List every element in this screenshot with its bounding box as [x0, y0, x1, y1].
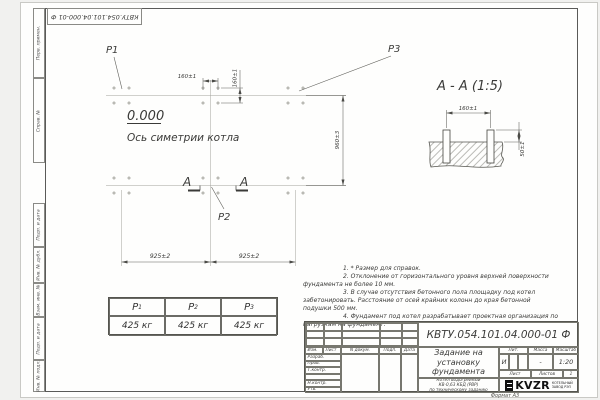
dim-925-left: 925±2	[150, 253, 170, 260]
load-point-p3: Р3	[388, 44, 400, 55]
col-podp-empty	[379, 354, 401, 393]
revision-grid	[305, 322, 418, 347]
rev-header-izm: Изм.	[305, 347, 323, 354]
load-value-p3: 425 кг	[221, 316, 277, 336]
rev-header-list: Лист	[323, 347, 341, 354]
rev-header-data: Дата	[401, 347, 418, 354]
anchor-bolt-right	[487, 130, 494, 163]
load-table-header-p3: Р3	[221, 298, 277, 316]
row-utv: Утв.	[305, 387, 341, 394]
dim-160-horizontal: 160±1	[178, 74, 197, 80]
lit-header: Лит.	[499, 347, 528, 354]
load-point-p2: Р2	[218, 212, 230, 223]
section-dim-50: 50±1	[520, 141, 526, 156]
load-value-p1: 425 кг	[109, 316, 165, 336]
scale-value: 1:20	[553, 354, 579, 370]
rev-header-ndokum: N докум.	[341, 347, 379, 354]
center-lines	[106, 80, 346, 266]
load-table: Р1 Р2 Р3 425 кг 425 кг 425 кг	[108, 297, 278, 335]
dim-160-vertical: 160±1	[233, 69, 239, 88]
anchor-bolt-left	[443, 130, 450, 163]
note-3: 3. В случае отсутствия бетонного пола пл…	[303, 289, 560, 313]
sheet-label: Лист	[499, 370, 531, 378]
dim-925-right: 925±2	[239, 253, 259, 260]
document-title: Задание на установку фундамента	[418, 347, 499, 378]
mass-header: Масса	[528, 347, 553, 354]
foundation-plan: 160±1 160±1 960±3 925±2 925±2 Р1 Р3 Р2 0…	[106, 44, 400, 266]
technical-notes: 1. * Размер для справок. 2. Отклонение о…	[303, 265, 560, 329]
kvzr-brand-text: KVZR	[515, 379, 550, 392]
boiler-axis-label: Ось симетрии котла	[127, 132, 239, 144]
company-logo-cell: KVZR КОТЕЛЬНЫЙ ЗАВОД РЭП	[499, 378, 579, 393]
load-table-header-p2: Р2	[165, 298, 221, 316]
sheets-label: Листов	[531, 370, 563, 378]
dim-960: 960±3	[335, 130, 341, 149]
section-cut-marks: А А	[182, 175, 248, 191]
col-ndokum-empty	[341, 354, 379, 393]
section-letter-right: А	[239, 175, 248, 189]
kvzr-logo-icon	[505, 380, 513, 391]
plan-dimension-lines	[122, 70, 347, 262]
load-table-header-p1: Р1	[109, 298, 165, 316]
lit-cell-2	[509, 354, 518, 370]
mass-value: -	[528, 354, 553, 370]
lit-cell-3	[518, 354, 528, 370]
load-value-p2: 425 кг	[165, 316, 221, 336]
kvzr-brand-subtext: КОТЕЛЬНЫЙ ЗАВОД РЭП	[552, 382, 573, 390]
note-2: 2. Отклонение от горизонтального уровня …	[303, 273, 560, 289]
lit-value: И	[499, 354, 509, 370]
col-data-empty	[401, 354, 418, 393]
title-block: КВТУ.054.101.04.000-01 Ф Изм. Лист N док…	[304, 321, 578, 392]
section-letter-left: А	[182, 175, 191, 189]
note-1: 1. * Размер для справок.	[303, 265, 560, 273]
format-label: Формат А3	[470, 393, 540, 399]
section-view: А - А (1:5) 160±1 50±1	[429, 79, 526, 167]
section-dim-160: 160±1	[459, 106, 478, 112]
scale-header: Масштаб	[553, 347, 579, 354]
section-title: А - А (1:5)	[436, 79, 503, 94]
sheets-value: 1	[563, 370, 579, 378]
elevation-mark: 0.000	[127, 109, 164, 124]
doc-number: КВТУ.054.101.04.000-01 Ф	[418, 322, 579, 347]
rev-header-podp: Подп.	[379, 347, 401, 354]
product-name: Котел водогрейный КВ-0,63 КБД (РВР) по т…	[418, 378, 499, 393]
load-point-p1: Р1	[106, 45, 118, 56]
